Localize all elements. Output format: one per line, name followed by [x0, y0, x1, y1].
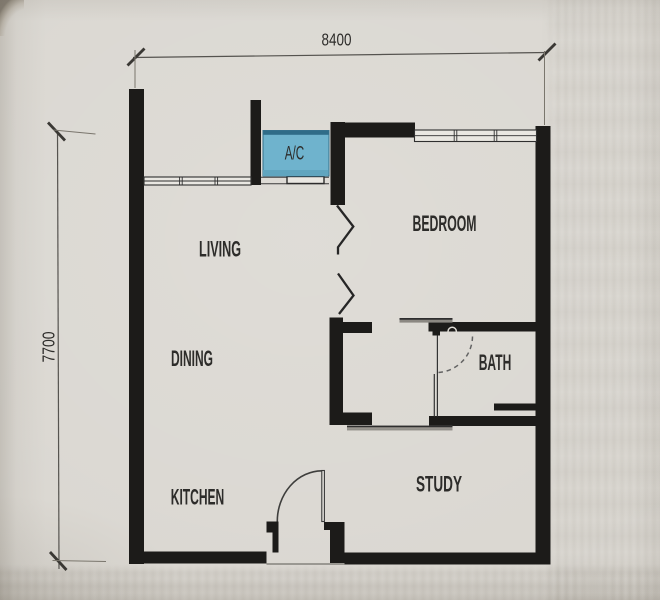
svg-text:LIVING: LIVING	[199, 237, 241, 262]
svg-text:A/C: A/C	[285, 144, 305, 165]
svg-text:7700: 7700	[39, 331, 59, 362]
svg-text:BATH: BATH	[479, 350, 512, 375]
svg-text:KITCHEN: KITCHEN	[171, 485, 225, 510]
svg-text:BEDROOM: BEDROOM	[413, 211, 477, 236]
svg-text:8400: 8400	[322, 30, 352, 50]
svg-text:DINING: DINING	[171, 346, 213, 371]
svg-text:STUDY: STUDY	[416, 472, 462, 497]
